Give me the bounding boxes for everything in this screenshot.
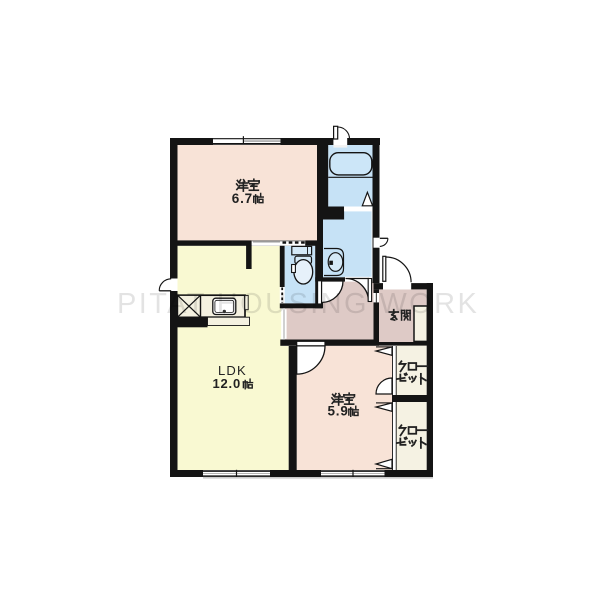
svg-text:12.0: 12.0	[213, 376, 242, 391]
svg-text:5.9: 5.9	[328, 404, 349, 419]
svg-text:6.7: 6.7	[232, 191, 253, 206]
svg-text:PITAT HOUSING WORK: PITAT HOUSING WORK	[117, 288, 479, 320]
